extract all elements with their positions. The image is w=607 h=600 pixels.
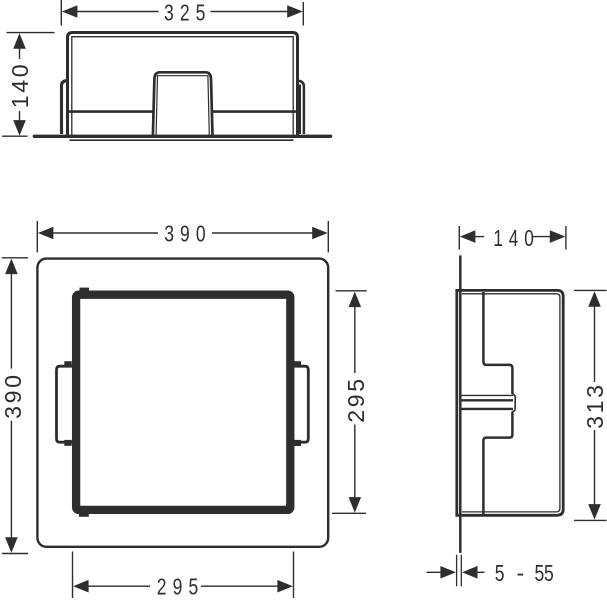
svg-text:295: 295: [343, 376, 369, 423]
svg-text:-: -: [517, 560, 525, 586]
svg-text:5: 5: [535, 560, 545, 586]
svg-text:5: 5: [544, 560, 554, 586]
svg-text:140: 140: [7, 62, 33, 109]
svg-text:295: 295: [157, 573, 205, 599]
svg-text:313: 313: [582, 382, 607, 429]
svg-text:140: 140: [493, 225, 539, 251]
svg-text:390: 390: [164, 220, 212, 246]
svg-text:390: 390: [0, 372, 26, 419]
svg-text:325: 325: [164, 0, 212, 26]
svg-text:5: 5: [495, 560, 505, 586]
